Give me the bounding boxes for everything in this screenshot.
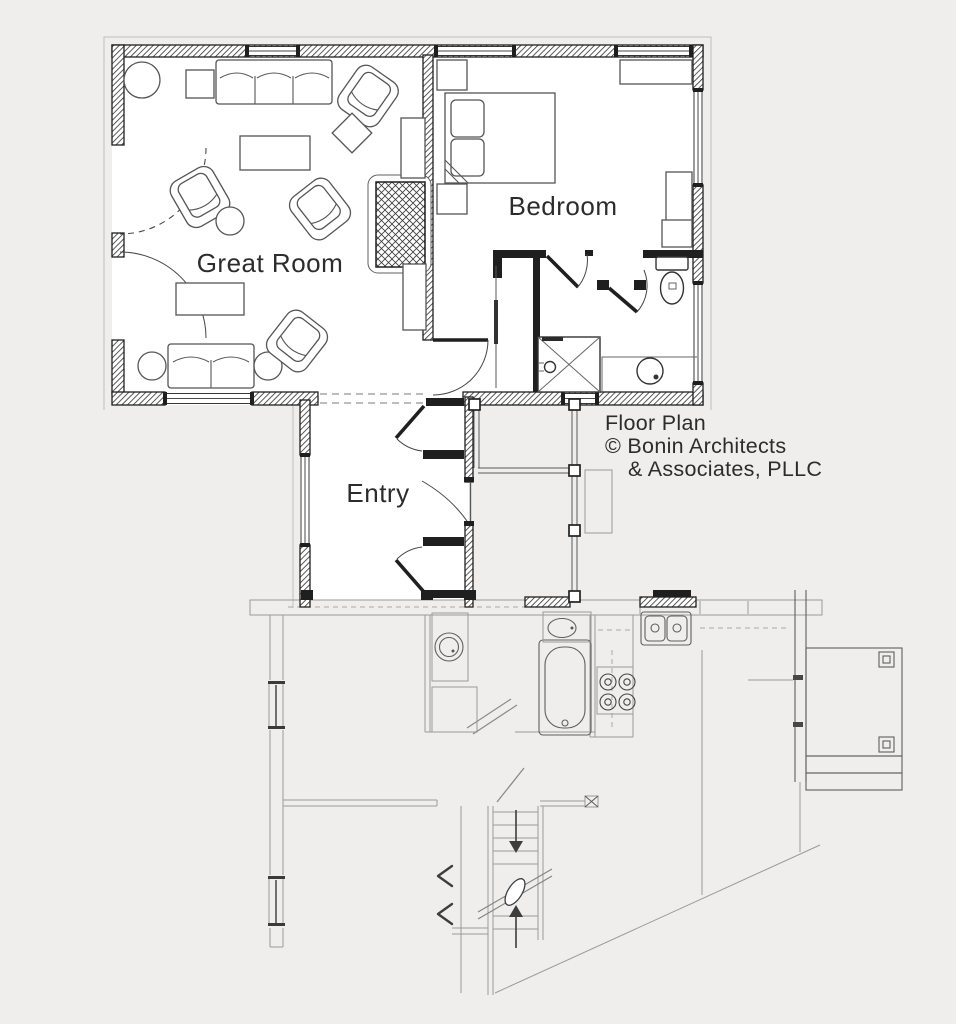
porch-post [569,399,580,410]
porch-post [569,525,580,536]
porch-post [469,399,480,410]
bath-south-wall [463,392,703,405]
entry-west-wall [300,400,310,607]
porch-post [569,591,580,602]
fireplace-cabinet [401,118,425,178]
side-table [186,70,214,98]
fireplace-cabinet [403,264,426,330]
round-table [138,352,166,380]
bedroom-label: Bedroom [509,191,618,221]
loveseat [168,344,254,388]
entry-label: Entry [346,478,409,508]
fireplace-hearth [376,182,425,267]
bed [445,93,555,183]
attribution-line1: Floor Plan [605,411,706,435]
floor-plan-page: Great Room Bedroom Entry Floor Plan © Bo… [0,0,956,1024]
chest [666,172,692,224]
east-wall [693,45,703,405]
attribution-line2: © Bonin Architects [605,434,786,458]
closet-rod-center [494,300,498,344]
shower [538,337,600,392]
dresser [620,60,692,84]
cabinet [662,220,692,247]
round-stool [216,207,244,235]
shower-drain [545,362,556,373]
sofa-table [176,283,244,315]
nightstand [437,60,467,90]
nightstand [437,184,467,214]
floor-plan-drawing: Great Room Bedroom Entry Floor Plan © Bo… [0,0,956,1024]
round-table [124,62,160,98]
attribution-line3: & Associates, PLLC [628,457,822,481]
pillow [451,100,484,137]
sofa [216,60,332,104]
coffee-table [240,136,310,170]
porch-post [569,465,580,476]
great-room-label: Great Room [197,248,344,278]
